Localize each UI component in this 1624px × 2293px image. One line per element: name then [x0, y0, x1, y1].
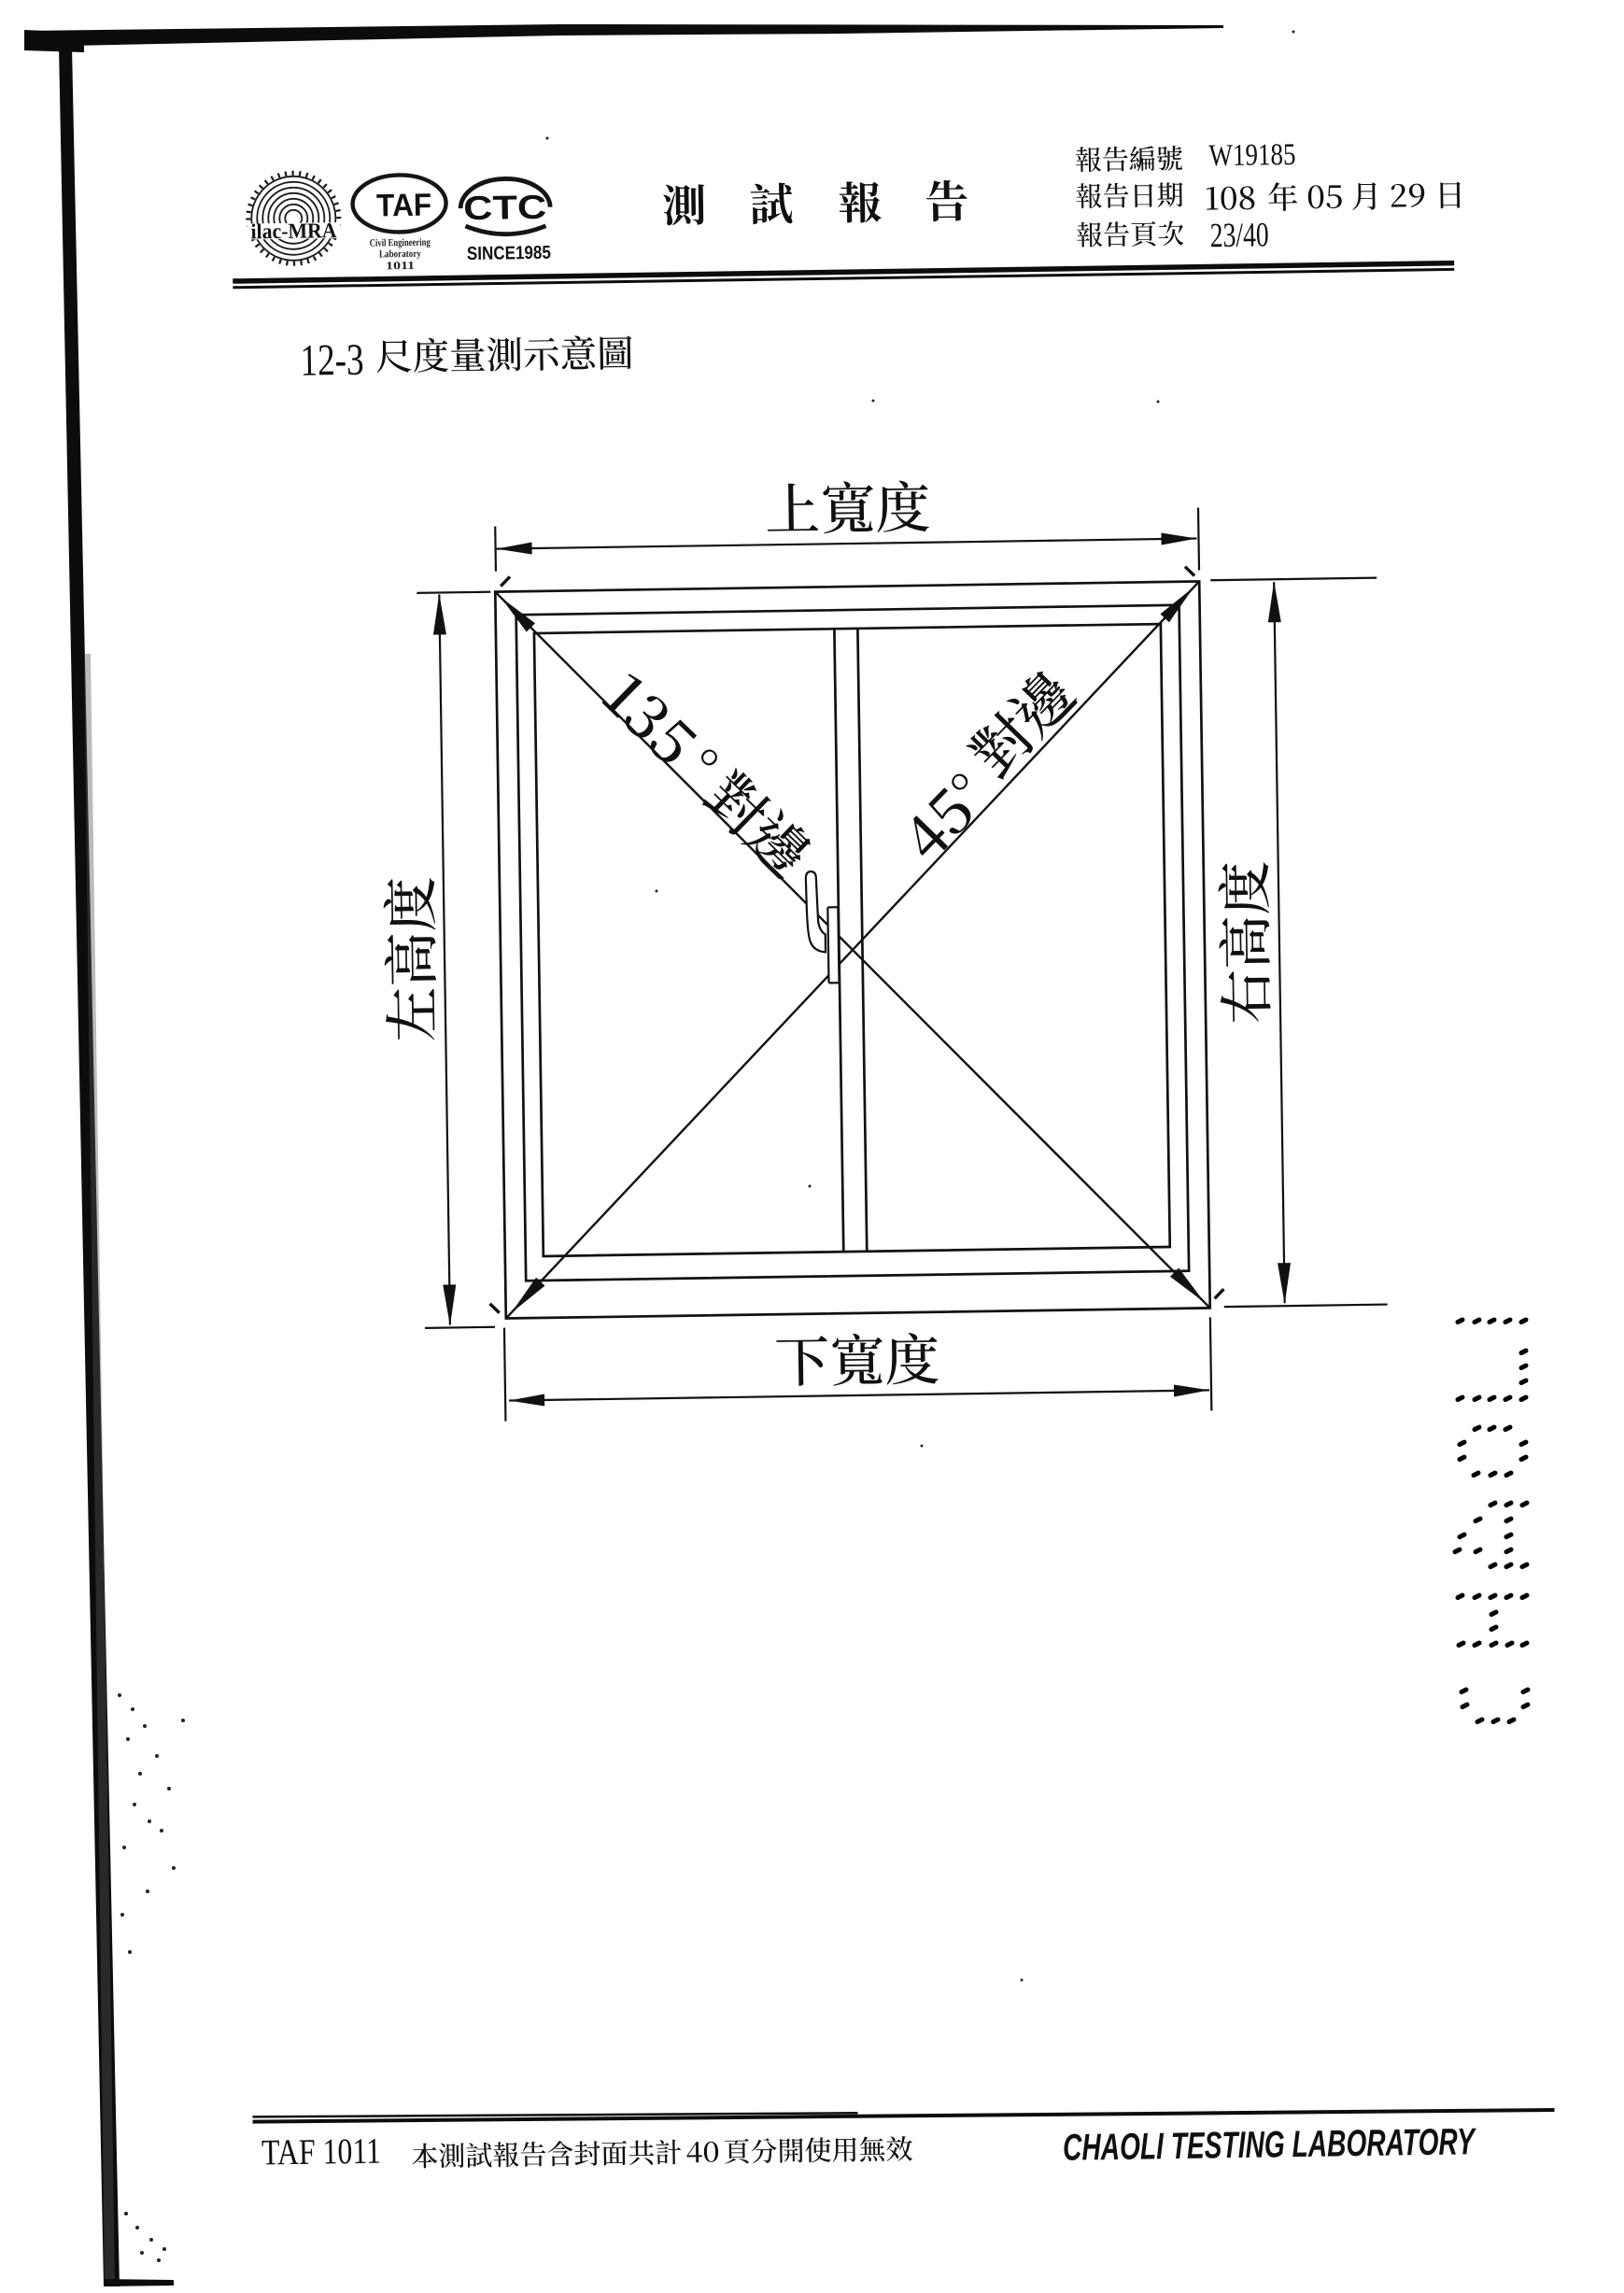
svg-text:W19185: W19185 — [1208, 138, 1296, 173]
svg-text:12-3: 12-3 — [300, 335, 364, 386]
svg-text:CTC: CTC — [463, 188, 547, 227]
svg-text:SINCE1985: SINCE1985 — [467, 243, 551, 264]
svg-text:ilac-MRA: ilac-MRA — [250, 219, 337, 243]
svg-text:TAF 1011: TAF 1011 — [261, 2131, 382, 2173]
svg-text:CHAOLI TESTING LABORATORY: CHAOLI TESTING LABORATORY — [1063, 2121, 1477, 2169]
svg-text:1011: 1011 — [386, 259, 415, 272]
svg-text:TAF: TAF — [376, 188, 432, 224]
svg-text:Civil Engineering: Civil Engineering — [370, 237, 431, 249]
svg-text:23/40: 23/40 — [1209, 216, 1269, 255]
